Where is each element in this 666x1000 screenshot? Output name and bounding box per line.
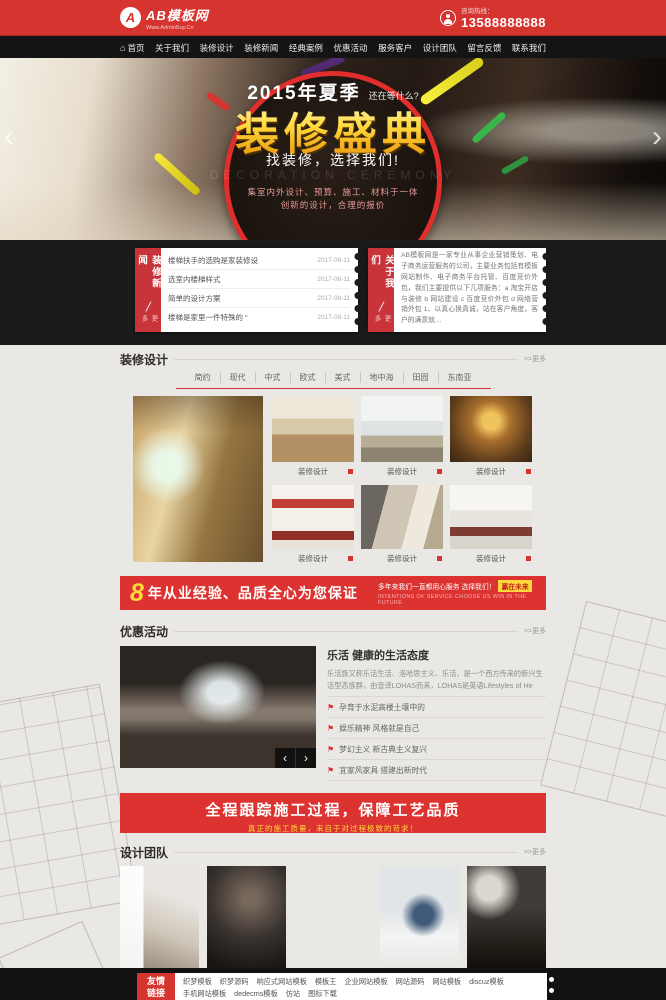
promo-list-item[interactable]: ⚑梦幻主义 新古典主义复兴 — [327, 739, 546, 760]
punch-holes — [542, 250, 550, 330]
gallery-image[interactable] — [361, 485, 443, 549]
team-section-header: 设计团队 >>更多 — [120, 845, 546, 859]
blueprint-decor — [0, 684, 138, 927]
caption-marker-icon[interactable] — [437, 469, 442, 474]
footer-link[interactable]: discuz模板 — [469, 977, 504, 987]
team-member-photo[interactable] — [467, 866, 546, 968]
design-style-tabs: 简约 现代 中式 欧式 美式 地中海 田园 东南亚 — [176, 372, 491, 389]
nav-item-clients[interactable]: 服务客户 — [378, 42, 412, 54]
tab-style[interactable]: 中式 — [256, 372, 291, 383]
promo-list-item[interactable]: ⚑宜家风家具 搭建出新时代 — [327, 760, 546, 781]
nav-item-feedback[interactable]: 留言反馈 — [467, 42, 501, 54]
cards-band: 装修新闻 更多 楼梯扶手的选购是家装修设 2017-08-11 选室内楼梯样式 … — [0, 240, 666, 345]
promo-list-item[interactable]: ⚑娱乐精神 风格就是自己 — [327, 718, 546, 739]
gallery-caption: 装修设计 — [361, 465, 443, 477]
footer-link[interactable]: 图标下载 — [308, 989, 337, 999]
flag-icon: ⚑ — [327, 766, 334, 775]
gallery-image-large[interactable] — [133, 396, 263, 562]
team-member-photo[interactable] — [294, 866, 373, 968]
hotline-label: 咨询热线： — [461, 5, 546, 15]
nav-item-cases[interactable]: 经典案例 — [289, 42, 323, 54]
tab-style[interactable]: 简约 — [186, 372, 221, 383]
nav-item-team[interactable]: 设计团队 — [423, 42, 457, 54]
footer-link[interactable]: 手机网站模板 — [183, 989, 226, 999]
team-gallery — [120, 866, 546, 968]
top-header: A AB模板网 Www.AdminBuy.Cn 咨询热线： 1358888888… — [0, 0, 666, 35]
tab-divider — [145, 302, 151, 312]
phone-contact-icon — [440, 10, 456, 26]
experience-banner: 8 年从业经验、品质全心为您保证 多年来我们一直都用心服务 选择我们！赢在未来 … — [120, 576, 546, 610]
promo-section-title: 优惠活动 — [120, 623, 168, 640]
hotline-phone: 13588888888 — [461, 15, 546, 30]
blueprint-decor — [0, 921, 106, 968]
experience-title: 年从业经验、品质全心为您保证 — [148, 583, 358, 603]
news-item[interactable]: 楼梯扶手的选购是家装修设 2017-08-11 — [168, 251, 350, 270]
promo-section-header: 优惠活动 >>更多 — [120, 624, 546, 638]
nav-item-promos[interactable]: 优惠活动 — [333, 42, 367, 54]
news-list: 楼梯扶手的选购是家装修设 2017-08-11 选室内楼梯样式 2017-08-… — [161, 248, 358, 332]
nav-item-contact[interactable]: 联系我们 — [512, 42, 546, 54]
team-member-photo[interactable] — [120, 866, 199, 968]
banner-desc-2: 创新的设计，合理的报价 — [0, 199, 666, 211]
news-card: 装修新闻 更多 楼梯扶手的选购是家装修设 2017-08-11 选室内楼梯样式 … — [135, 248, 358, 332]
tab-style[interactable]: 地中海 — [361, 372, 404, 383]
footer-link[interactable]: 网站模板 — [432, 977, 461, 987]
gallery-caption: 装修设计 — [361, 552, 443, 564]
caption-marker-icon[interactable] — [348, 469, 353, 474]
banner-desc-1: 集室内外设计、预算、施工、材料于一体 — [0, 186, 666, 198]
caption-marker-icon[interactable] — [437, 556, 442, 561]
news-item[interactable]: 简单的设计方案 2017-08-11 — [168, 289, 350, 308]
gallery-image[interactable] — [361, 396, 443, 462]
experience-number: 8 — [130, 579, 144, 608]
gallery-image[interactable] — [450, 485, 532, 549]
tab-style[interactable]: 东南亚 — [439, 372, 481, 383]
gallery-caption: 装修设计 — [450, 465, 532, 477]
design-gallery: 装修设计 装修设计 装修设计 装修设计 装修设计 装修设计 — [120, 396, 546, 568]
team-section-title: 设计团队 — [120, 844, 168, 861]
home-icon: ⌂ — [120, 43, 125, 53]
promo-article-title[interactable]: 乐活 健康的生活态度 — [327, 647, 546, 663]
news-item[interactable]: 选室内楼梯样式 2017-08-11 — [168, 270, 350, 289]
site-logo[interactable]: A AB模板网 Www.AdminBuy.Cn — [120, 5, 209, 31]
team-member-photo[interactable] — [207, 866, 286, 968]
gallery-image[interactable] — [272, 485, 354, 549]
footer-link[interactable]: 企业网站模板 — [344, 977, 387, 987]
about-text: AB模板网是一家专业从事企业营销策划、电子商务运营服务的公司，主要业务包括有模板… — [401, 251, 538, 329]
tab-divider — [378, 302, 384, 312]
quality-banner: 全程跟踪施工过程，保障工艺品质 真正的施工质量，来自于对过程极致的苛求！ — [120, 793, 546, 833]
main-nav: ⌂首页 关于我们 装修设计 装修新闻 经典案例 优惠活动 服务客户 设计团队 留… — [0, 35, 666, 58]
slider-next-icon[interactable]: › — [652, 122, 662, 152]
caption-marker-icon[interactable] — [526, 469, 531, 474]
hotline-block: 咨询热线： 13588888888 — [440, 5, 546, 30]
nav-item-design[interactable]: 装修设计 — [200, 42, 234, 54]
tab-style[interactable]: 现代 — [221, 372, 256, 383]
news-tab-title: 装修新闻 — [134, 255, 162, 297]
footer-link[interactable]: 网站源码 — [396, 977, 425, 987]
punch-dots — [549, 977, 554, 999]
win-future-badge: 赢在未来 — [498, 580, 531, 592]
section-divider — [174, 359, 518, 360]
news-more-link[interactable]: 更多 — [138, 315, 158, 327]
punch-holes — [354, 250, 362, 330]
design-more-link[interactable]: >>更多 — [524, 354, 546, 364]
section-divider — [174, 631, 518, 632]
news-item[interactable]: 楼梯是家里一件特殊的 “ 2017-08-11 — [168, 308, 350, 327]
gallery-caption: 装修设计 — [450, 552, 532, 564]
friend-links-panel: 织梦模板 织梦源码 响应式网站模板 模板王 企业网站模板 网站源码 网站模板 d… — [175, 973, 547, 1000]
banner-watermark: DECORATION CEREMONY — [0, 168, 666, 182]
nav-item-about[interactable]: 关于我们 — [155, 42, 189, 54]
promo-content: ‹ › 乐活 健康的生活态度 乐活族又称乐活生活、洛哈思主义、乐活，是一个西方传… — [120, 646, 546, 781]
gallery-caption: 装修设计 — [272, 552, 354, 564]
blueprint-decor — [540, 601, 666, 819]
flag-icon: ⚑ — [327, 745, 334, 754]
footer: 友情 链接 织梦模板 织梦源码 响应式网站模板 模板王 企业网站模板 网站源码 … — [0, 968, 666, 1000]
footer-link[interactable]: 织梦源码 — [220, 977, 249, 987]
main-content: 装修设计 >>更多 简约 现代 中式 欧式 美式 地中海 田园 东南亚 装修设计… — [0, 345, 666, 968]
flag-icon: ⚑ — [327, 703, 334, 712]
design-section-header: 装修设计 >>更多 — [120, 352, 546, 366]
quality-title: 全程跟踪施工过程，保障工艺品质 — [120, 799, 546, 820]
about-more-link[interactable]: 更多 — [371, 315, 391, 327]
promo-prev-icon[interactable]: ‹ — [275, 748, 295, 768]
promo-list-item[interactable]: ⚑孕育于水泥高楼土壤中的 — [327, 697, 546, 718]
promo-next-icon[interactable]: › — [296, 748, 316, 768]
footer-link[interactable]: 仿站 — [286, 989, 300, 999]
promo-article-excerpt: 乐活族又称乐活生活、洛哈思主义、乐活，是一个西方传来的新兴生活型态族群，由音译L… — [327, 668, 546, 691]
nav-item-news[interactable]: 装修新闻 — [244, 42, 278, 54]
caption-marker-icon[interactable] — [348, 556, 353, 561]
footer-link[interactable]: dedecms模板 — [234, 989, 278, 999]
footer-link[interactable]: 织梦模板 — [183, 977, 212, 987]
footer-link[interactable]: 响应式网站模板 — [257, 977, 307, 987]
quality-subtitle: 真正的施工质量，来自于对过程极致的苛求！ — [120, 823, 546, 834]
slider-prev-icon[interactable]: ‹ — [4, 122, 14, 152]
gallery-caption: 装修设计 — [272, 465, 354, 477]
about-tab: 关于我们 更多 — [368, 248, 394, 332]
gallery-image[interactable] — [450, 396, 532, 462]
section-divider — [174, 852, 518, 853]
promo-image[interactable]: ‹ › — [120, 646, 316, 768]
promo-list: ⚑孕育于水泥高楼土壤中的 ⚑娱乐精神 风格就是自己 ⚑梦幻主义 新古典主义复兴 … — [327, 696, 546, 781]
hero-banner: 2015年夏季还在等什么? 装修盛典 找装修，选择我们! DECORATION … — [0, 58, 666, 240]
team-member-photo[interactable] — [380, 866, 459, 968]
flag-icon: ⚑ — [327, 724, 334, 733]
about-tab-title: 关于我们 — [367, 255, 395, 297]
experience-side: 多年来我们一直都用心服务 选择我们！赢在未来 INTENTIONS OF SER… — [378, 580, 536, 606]
nav-item-home[interactable]: ⌂首页 — [120, 42, 144, 54]
friend-links-label: 友情 链接 — [137, 973, 175, 1000]
footer-link[interactable]: 模板王 — [315, 977, 337, 987]
logo-icon: A — [120, 7, 141, 28]
logo-title: AB模板网 — [146, 5, 209, 24]
team-more-link[interactable]: >>更多 — [524, 847, 546, 857]
tab-style[interactable]: 美式 — [326, 372, 361, 383]
tab-style[interactable]: 欧式 — [291, 372, 326, 383]
logo-subtitle: Www.AdminBuy.Cn — [146, 25, 209, 31]
promo-more-link[interactable]: >>更多 — [524, 626, 546, 636]
design-section-title: 装修设计 — [120, 351, 168, 368]
about-card: 关于我们 更多 AB模板网是一家专业从事企业营销策划、电子商务运营服务的公司，主… — [368, 248, 546, 332]
tab-style[interactable]: 田园 — [404, 372, 439, 383]
gallery-image[interactable] — [272, 396, 354, 462]
banner-slogan: 找装修，选择我们! — [0, 150, 666, 170]
news-tab: 装修新闻 更多 — [135, 248, 161, 332]
caption-marker-icon[interactable] — [526, 556, 531, 561]
